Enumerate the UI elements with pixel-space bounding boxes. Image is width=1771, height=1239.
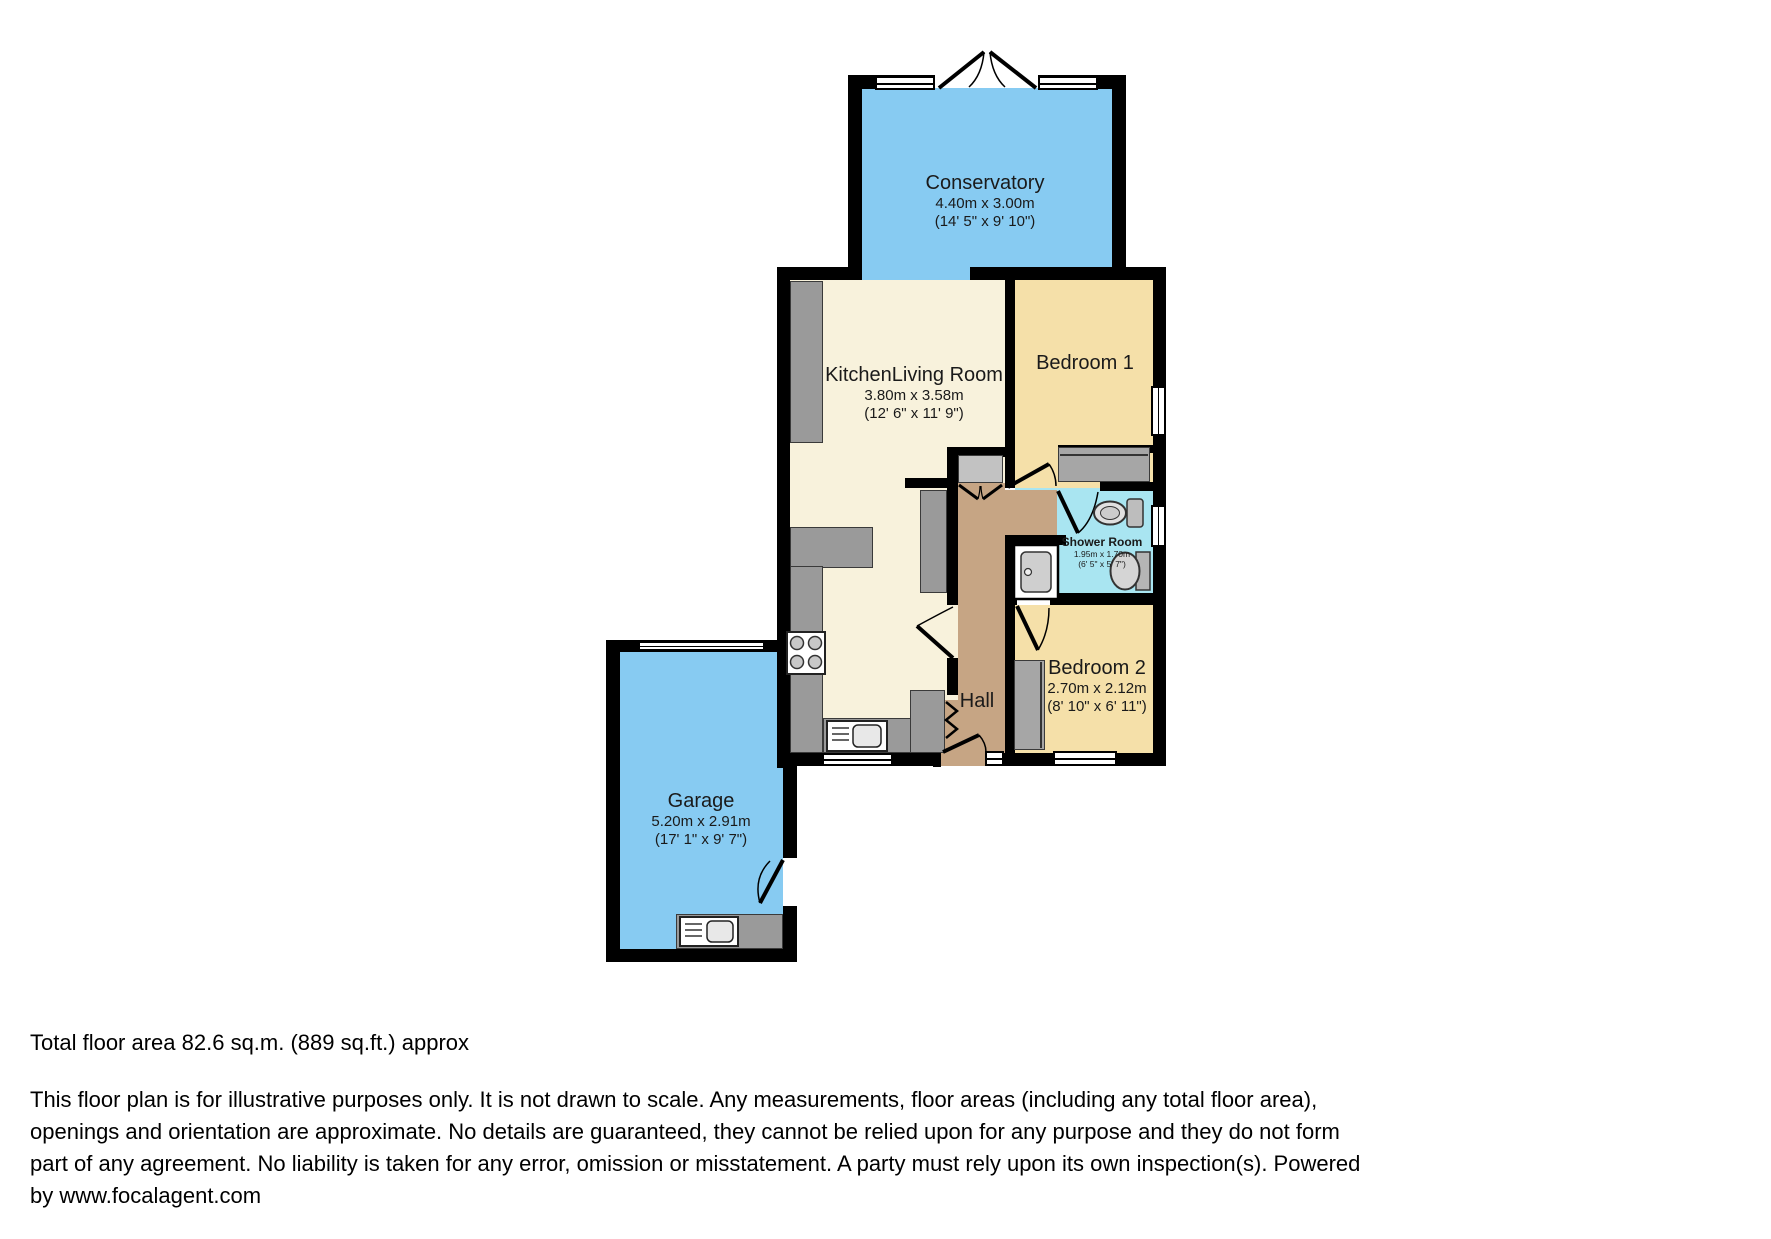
room-dims-imperial: (8' 10" x 6' 11") xyxy=(1047,698,1146,716)
shower-tray xyxy=(1014,545,1058,599)
disclaimer-text: This floor plan is for illustrative purp… xyxy=(30,1084,1730,1212)
room-name: Shower Room xyxy=(1062,536,1143,549)
room-name: KitchenLiving Room xyxy=(825,364,1003,387)
disclaimer-line: by www.focalagent.com xyxy=(30,1180,1730,1212)
room-dims-imperial: (12' 6" x 11' 9") xyxy=(825,405,1003,423)
bedroom2-door xyxy=(1017,606,1049,650)
shower-door xyxy=(1058,491,1098,533)
garage-label: Garage 5.20m x 2.91m (17' 1" x 9' 7") xyxy=(651,790,750,849)
room-dims-metric: 5.20m x 2.91m xyxy=(651,813,750,831)
shower-room-label: Shower Room 1.95m x 1.70m (6' 5" x 5' 7"… xyxy=(1062,536,1143,569)
room-name: Hall xyxy=(960,690,994,713)
room-name: Bedroom 1 xyxy=(1036,352,1134,375)
conservatory-label: Conservatory 4.40m x 3.00m (14' 5" x 9' … xyxy=(926,172,1045,231)
room-dims-metric: 3.80m x 3.58m xyxy=(825,387,1003,405)
room-dims-imperial: (6' 5" x 5' 7") xyxy=(1062,559,1143,569)
room-dims-metric: 1.95m x 1.70m xyxy=(1062,549,1143,559)
room-dims-metric: 2.70m x 2.12m xyxy=(1047,680,1146,698)
bedroom1-label: Bedroom 1 xyxy=(1036,352,1134,375)
room-name: Conservatory xyxy=(926,172,1045,195)
disclaimer-line: This floor plan is for illustrative purp… xyxy=(30,1084,1730,1116)
room-dims-imperial: (14' 5" x 9' 10") xyxy=(926,213,1045,231)
disclaimer-line: part of any agreement. No liability is t… xyxy=(30,1148,1730,1180)
garage-door xyxy=(758,860,783,903)
stove xyxy=(787,632,825,674)
bedroom2-label: Bedroom 2 2.70m x 2.12m (8' 10" x 6' 11"… xyxy=(1047,657,1146,716)
french-doors xyxy=(939,52,1036,88)
room-dims-imperial: (17' 1" x 9' 7") xyxy=(651,831,750,849)
hall-label: Hall xyxy=(960,690,994,713)
kitchen-door xyxy=(917,607,953,658)
disclaimer-line: openings and orientation are approximate… xyxy=(30,1116,1730,1148)
closet-double-doors xyxy=(959,485,1002,499)
room-dims-metric: 4.40m x 3.00m xyxy=(926,195,1045,213)
kitchen-living-label: KitchenLiving Room 3.80m x 3.58m (12' 6"… xyxy=(825,364,1003,423)
floor-plan: Conservatory 4.40m x 3.00m (14' 5" x 9' … xyxy=(0,0,1771,1239)
total-floor-area-text: Total floor area 82.6 sq.m. (889 sq.ft.)… xyxy=(30,1030,469,1056)
room-name: Bedroom 2 xyxy=(1047,657,1146,680)
room-name: Garage xyxy=(651,790,750,813)
garage-sink xyxy=(680,917,738,946)
toilet xyxy=(1094,499,1143,527)
front-door xyxy=(943,735,986,752)
bifold-door xyxy=(946,702,957,738)
bedroom1-door xyxy=(1008,464,1056,487)
kitchen-sink xyxy=(827,721,887,751)
